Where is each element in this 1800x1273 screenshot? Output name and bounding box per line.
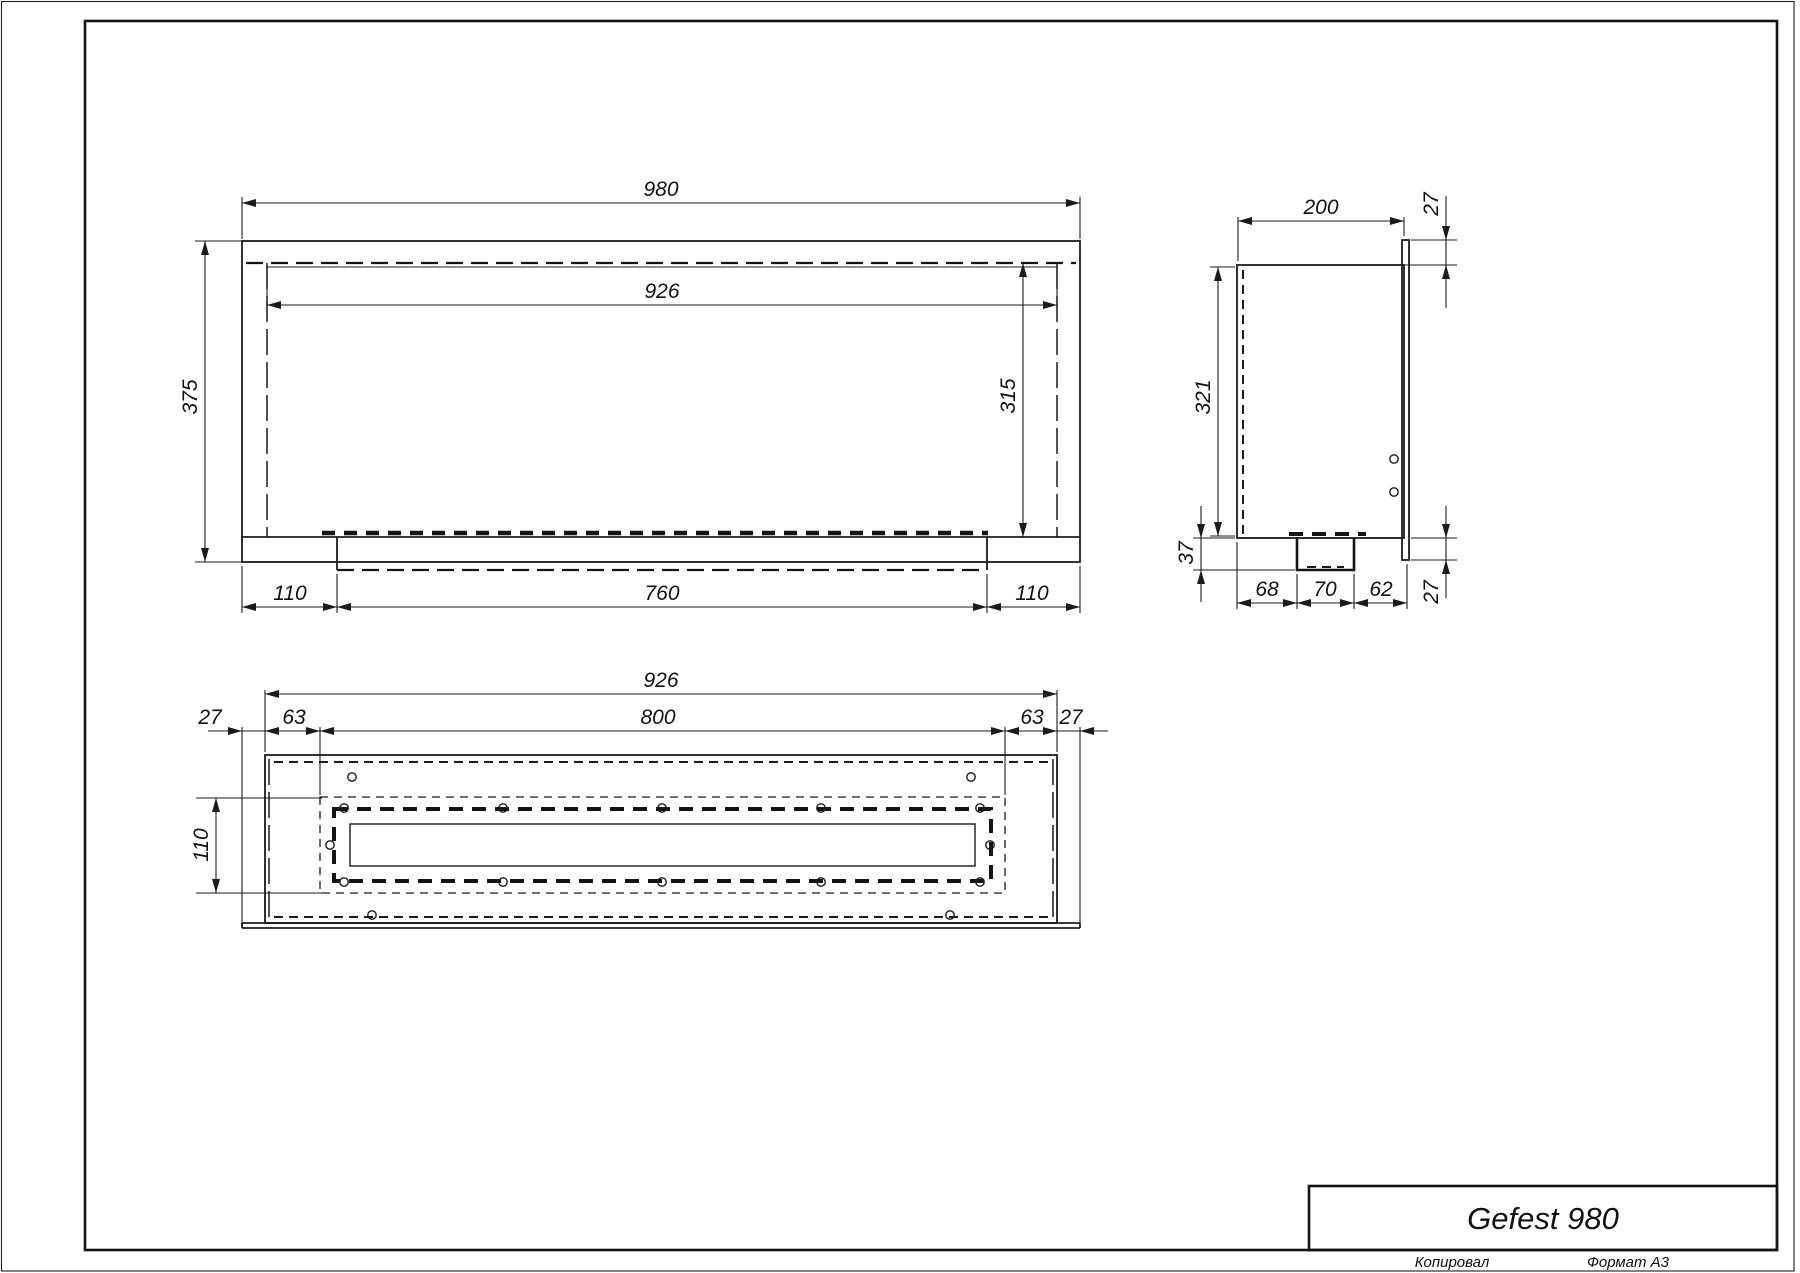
plan-body-outline — [265, 755, 1057, 923]
dim-side-b: 70 — [1313, 578, 1337, 601]
arrowhead — [1442, 226, 1450, 240]
arrowhead — [1197, 570, 1205, 584]
arrowhead — [1340, 599, 1354, 607]
dim-side-height: 321 — [1192, 379, 1215, 414]
arrowhead — [201, 241, 209, 255]
arrowhead — [201, 548, 209, 562]
side-flange-plate — [1402, 240, 1409, 560]
plan-burner-frame-hidden — [320, 797, 1005, 893]
arrowhead — [1237, 599, 1251, 607]
drawing-title: Gefest 980 — [1467, 1201, 1619, 1236]
arrowhead — [212, 798, 220, 812]
arrowhead — [1043, 690, 1057, 698]
sheet-frame — [2, 2, 1795, 1272]
arrowhead — [1214, 267, 1222, 281]
arrowhead — [228, 727, 242, 735]
dim-plan-width: 926 — [643, 669, 678, 692]
dim-front-overall-height: 375 — [179, 379, 202, 414]
body-hole — [967, 773, 975, 781]
frame-hole — [340, 878, 348, 886]
dim-plan-flange-right: 27 — [1058, 706, 1084, 729]
arrowhead — [1390, 217, 1404, 225]
dim-front-overall-width: 980 — [643, 178, 678, 201]
arrowhead — [320, 727, 334, 735]
arrowhead — [1238, 217, 1252, 225]
copied-label: Копировал — [1415, 1254, 1490, 1271]
arrowhead — [1393, 599, 1407, 607]
inner-frame — [85, 21, 1777, 1250]
arrowhead — [265, 690, 279, 698]
dim-plan-depth: 110 — [190, 828, 213, 862]
body-hole — [348, 773, 356, 781]
arrowhead — [991, 727, 1005, 735]
arrowhead — [1297, 599, 1311, 607]
side-view: 200 27 321 37 68 70 62 — [1175, 191, 1457, 609]
dim-side-c: 62 — [1369, 578, 1393, 601]
arrowhead — [1005, 727, 1019, 735]
arrowhead — [267, 301, 281, 309]
dim-front-opening-height: 315 — [997, 378, 1020, 413]
dim-plan-flange-left: 27 — [197, 706, 223, 729]
arrowhead — [337, 603, 351, 611]
dim-side-flange-bottom: 27 — [1420, 579, 1443, 605]
frame-hole — [326, 841, 334, 849]
dim-side-tray-drop: 37 — [1175, 540, 1198, 565]
dim-front-burner: 760 — [644, 582, 679, 605]
dim-plan-inset-right: 63 — [1020, 706, 1044, 729]
title-block: Gefest 980 Копировал Формат A3 — [1309, 1186, 1777, 1271]
arrowhead — [242, 603, 256, 611]
arrowhead — [1442, 524, 1450, 538]
side-body-outline — [1237, 265, 1404, 538]
arrowhead — [242, 199, 256, 207]
format-label: Формат A3 — [1587, 1254, 1670, 1271]
arrowhead — [1066, 199, 1080, 207]
arrowhead — [1019, 523, 1027, 537]
arrowhead — [306, 727, 320, 735]
side-tray-outline — [1297, 538, 1354, 570]
dim-side-a: 68 — [1255, 578, 1279, 601]
arrowhead — [1043, 727, 1057, 735]
arrowhead — [323, 603, 337, 611]
arrowhead — [1043, 301, 1057, 309]
arrowhead — [1283, 599, 1297, 607]
arrowhead — [265, 727, 279, 735]
dim-front-right: 110 — [1015, 582, 1049, 605]
drawing-canvas: 980 926 375 315 110 760 110 — [0, 0, 1800, 1273]
plan-burner-frame — [334, 809, 991, 881]
arrowhead — [1214, 522, 1222, 536]
arrowhead — [1442, 265, 1450, 279]
arrowhead — [1354, 599, 1368, 607]
drawing-sheet: 980 926 375 315 110 760 110 — [0, 0, 1800, 1273]
arrowhead — [1019, 263, 1027, 277]
dim-front-left: 110 — [273, 582, 307, 605]
arrowhead — [212, 879, 220, 893]
dim-side-depth: 200 — [1302, 196, 1338, 219]
dim-front-opening-width: 926 — [644, 280, 679, 303]
arrowhead — [1197, 524, 1205, 538]
arrowhead — [987, 603, 1001, 611]
dim-side-flange-top: 27 — [1420, 191, 1443, 217]
outer-border — [2, 2, 1795, 1272]
plan-burner-slot — [350, 824, 975, 866]
arrowhead — [973, 603, 987, 611]
arrowhead — [1066, 603, 1080, 611]
side-hole-lower — [1390, 488, 1398, 496]
dim-plan-inset-left: 63 — [282, 706, 306, 729]
side-hole-upper — [1390, 455, 1398, 463]
arrowhead — [1442, 560, 1450, 574]
front-view: 980 926 375 315 110 760 110 — [179, 178, 1080, 613]
plan-view: 926 27 63 800 63 27 110 — [190, 669, 1108, 928]
dim-plan-opening: 800 — [640, 706, 675, 729]
